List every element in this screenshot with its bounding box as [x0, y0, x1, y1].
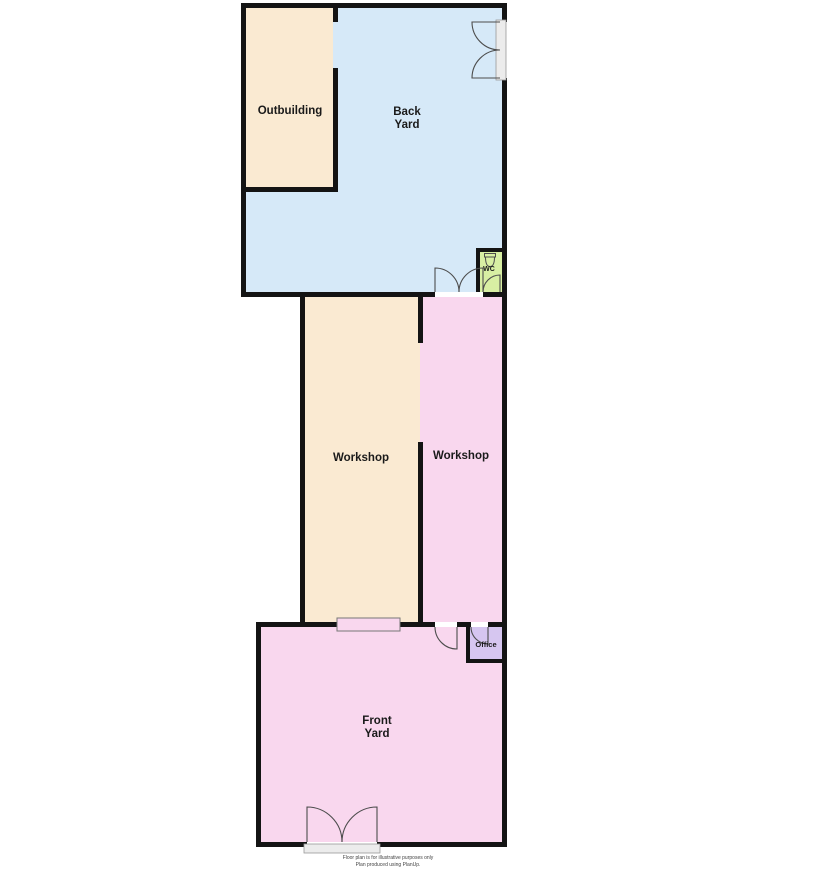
- label-front-yard-line1: Front: [362, 715, 392, 727]
- window-front-yard: [337, 618, 400, 631]
- label-outbuilding: Outbuilding: [258, 105, 323, 117]
- label-front-yard-line2: Yard: [365, 728, 390, 740]
- label-back-yard-line1: Back: [393, 106, 421, 118]
- footer-disclaimer-line2: Plan produced using PlanUp.: [356, 862, 421, 868]
- floor-plan: Outbuilding Back Yard Workshop Workshop …: [0, 0, 825, 883]
- floor-plan-page: Outbuilding Back Yard Workshop Workshop …: [0, 0, 825, 883]
- footer-disclaimer-line1: Floor plan is for illustrative purposes …: [343, 855, 434, 861]
- label-workshop-right: Workshop: [433, 450, 489, 462]
- door-threshold-front-yard: [304, 844, 380, 853]
- label-workshop-left: Workshop: [333, 452, 389, 464]
- label-wc: WC: [483, 266, 495, 273]
- label-office: Office: [475, 640, 496, 649]
- room-outbuilding: [246, 8, 333, 187]
- label-back-yard-line2: Yard: [395, 119, 420, 131]
